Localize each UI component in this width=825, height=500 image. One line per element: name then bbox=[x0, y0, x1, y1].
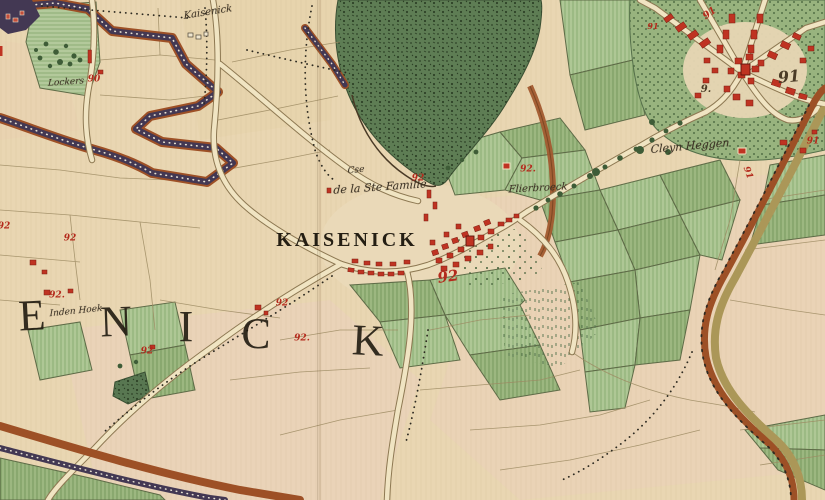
map-artwork bbox=[0, 0, 825, 500]
map-canvas[interactable]: KAISENICKCsede la Ste FamilleFlierbroeck… bbox=[0, 0, 825, 500]
